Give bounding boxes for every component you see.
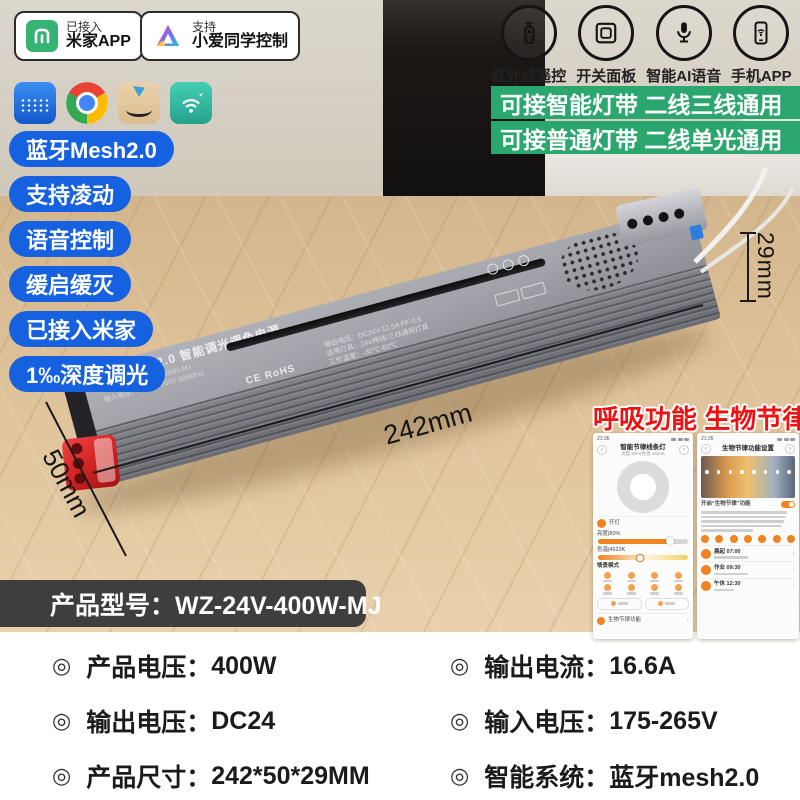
spec-value: 242*50*29MM: [211, 762, 369, 791]
schedule-icon: [701, 581, 711, 591]
product-ad-canvas: 已接入 米家APP 支持 小爱同学控制: [0, 0, 800, 800]
mode-buttons: [597, 598, 689, 610]
amazon-icon: [118, 82, 160, 124]
app-screenshot-light-control: 21:36 ‹ 智能节律线条灯 亮度 80%|色温 4622K › 开灯 亮度|…: [593, 433, 693, 639]
light-preview-ring: [617, 461, 669, 513]
control-methods-row: 红外线遥控 开关面板 智能AI语音: [490, 5, 800, 86]
pairing-button: [689, 224, 704, 240]
feature-label: 红外线遥控: [491, 65, 566, 86]
app-screenshot-biorhythm-settings: 21:35 ‹ 生物节律功能设置 › 开启“生物节律”功能 晨: [697, 433, 799, 639]
mijia-app-badge: 已接入 米家APP: [14, 11, 143, 61]
feature-label: 手机APP: [731, 65, 792, 86]
bullet-icon: ◎: [450, 763, 469, 789]
pill-deep-dimming: 1‰深度调光: [9, 356, 165, 392]
xiaoai-badge: 支持 小爱同学控制: [140, 11, 300, 61]
chevron-right-icon: ›: [793, 550, 795, 558]
device-state: 亮度 80%|色温 4622K: [620, 451, 666, 456]
power-icon: [597, 519, 606, 528]
feature-ir-remote: 红外线遥控: [490, 5, 568, 86]
spec-label: 输入电压：: [484, 703, 609, 739]
biorhythm-entry-label: 生物节律功能: [608, 617, 641, 623]
more-icon: ›: [785, 444, 795, 454]
spec-smart-system: ◎ 智能系统： 蓝牙mesh2.0: [450, 758, 759, 794]
feature-phone-app: 手机APP: [723, 5, 800, 86]
spec-label: 产品电压：: [86, 648, 211, 684]
schedule-item: 作业 09:30 ›: [701, 561, 795, 575]
cert-box-1: [494, 289, 520, 307]
schedule-item: 午休 12:30 ›: [701, 578, 795, 592]
schedule-icon: [701, 565, 711, 575]
page-title: 生物节律功能设置: [722, 445, 774, 452]
ir-remote-icon: [501, 5, 557, 61]
phone-app-icon: [733, 5, 789, 61]
bullet-icon: ◎: [52, 708, 71, 734]
brightness-label: 亮度|80%: [597, 531, 689, 537]
spec-value: 175-265V: [609, 707, 717, 736]
feature-pill-list: 蓝牙Mesh2.0 支持凌动 语音控制 缓启缓灭 已接入米家 1‰深度调光: [9, 131, 174, 392]
scenes-section-label: 情景模式: [597, 563, 689, 569]
ai-voice-icon: [656, 5, 712, 61]
xiaoai-icon: [152, 20, 184, 52]
badge-top-text: 支持: [192, 21, 288, 34]
spec-value: 蓝牙mesh2.0: [609, 758, 759, 794]
badge-bottom-text: 小爱同学控制: [192, 34, 288, 51]
mijia-icon: [26, 20, 58, 52]
platform-app-icons: [14, 82, 212, 124]
schedule-icon: [701, 549, 711, 559]
biorhythm-entry-row: 生物节律功能 ›: [597, 613, 689, 625]
toggle-label: 开启“生物节律”功能: [701, 501, 751, 507]
status-bar: 21:35: [701, 436, 795, 443]
compat-banner-normal-strip: 可接普通灯带 二线单光通用: [491, 121, 800, 154]
compat-banner-smart-strip: 可接智能灯带 二线三线通用: [491, 86, 800, 119]
bullet-icon: ◎: [52, 653, 71, 679]
power-label: 开灯: [609, 520, 620, 526]
chevron-right-icon: ›: [793, 566, 795, 574]
pill-voice-control: 语音控制: [9, 221, 131, 257]
more-icon: ›: [679, 445, 689, 455]
bullet-icon: ◎: [52, 763, 71, 789]
bullet-icon: ◎: [450, 653, 469, 679]
cert-box-2: [520, 282, 546, 300]
spec-output-voltage: ◎ 输出电压： DC24: [52, 703, 275, 739]
toggle-switch: [781, 501, 795, 508]
status-bar: 21:36: [597, 436, 689, 443]
spec-label: 输出电压：: [86, 703, 211, 739]
product-model-banner: 产品型号：WZ-24V-400W-MJ: [0, 580, 366, 627]
cct-slider: [598, 555, 688, 560]
pill-soft-start: 缓启缓灭: [9, 266, 131, 302]
scene-grid: [597, 572, 689, 595]
spec-input-voltage: ◎ 输入电压： 175-265V: [450, 703, 718, 739]
spec-value: 16.6A: [609, 652, 676, 681]
status-icons: [777, 438, 795, 441]
biorhythm-icon: [597, 617, 605, 625]
feature-switch-panel: 开关面板: [568, 5, 646, 86]
breathing-biorhythm-headline: 呼吸功能 生物节律: [593, 399, 800, 436]
spec-label: 产品尺寸：: [86, 758, 211, 794]
nav-bar: ‹ 生物节律功能设置 ›: [701, 444, 795, 454]
badge-top-text: 已接入: [66, 21, 131, 34]
spec-value: 400W: [211, 652, 276, 681]
cct-label: 色温|4622K: [597, 547, 689, 553]
nav-bar: ‹ 智能节律线条灯 亮度 80%|色温 4622K ›: [597, 444, 689, 457]
sun-cycle-image: [701, 456, 795, 498]
keyboard-app-icon: [14, 82, 56, 124]
feature-label: 开关面板: [576, 65, 636, 86]
spec-label: 输出电流：: [484, 648, 609, 684]
spec-label: 智能系统：: [484, 758, 609, 794]
bullet-icon: ◎: [450, 708, 469, 734]
back-icon: ‹: [701, 444, 711, 454]
schedule-name: 作业 09:30: [714, 565, 748, 571]
status-time: 21:35: [701, 437, 714, 443]
chrome-icon: [66, 82, 108, 124]
spec-value: DC24: [211, 707, 275, 736]
feature-label: 智能AI语音: [646, 65, 721, 86]
description-paragraph: [701, 511, 795, 532]
spec-output-current: ◎ 输出电流： 16.6A: [450, 648, 676, 684]
chevron-right-icon: ›: [793, 582, 795, 590]
status-icons: [671, 438, 689, 441]
brightness-slider: [598, 539, 688, 544]
period-icons-row: [701, 535, 795, 543]
status-time: 21:36: [597, 437, 610, 443]
spec-product-size: ◎ 产品尺寸： 242*50*29MM: [52, 758, 370, 794]
biorhythm-toggle-row: 开启“生物节律”功能: [701, 501, 795, 508]
schedule-name: 晨起 07:00: [714, 549, 748, 555]
badge-bottom-text: 米家APP: [66, 34, 131, 51]
spec-product-power: ◎ 产品电压： 400W: [52, 648, 277, 684]
schedule-name: 午休 12:30: [714, 581, 741, 587]
power-row: 开灯: [597, 516, 689, 531]
pill-bluetooth-mesh: 蓝牙Mesh2.0: [9, 131, 174, 167]
back-icon: ‹: [597, 445, 607, 455]
switch-panel-icon: [578, 5, 634, 61]
wifi-app-icon: [170, 82, 212, 124]
schedule-item: 晨起 07:00 ›: [701, 545, 795, 559]
pill-lingdong: 支持凌动: [9, 176, 131, 212]
chevron-right-icon: ›: [687, 617, 689, 625]
feature-ai-voice: 智能AI语音: [645, 5, 723, 86]
height-dimension: 29mm: [752, 232, 779, 300]
pill-mijia-connected: 已接入米家: [9, 311, 153, 347]
